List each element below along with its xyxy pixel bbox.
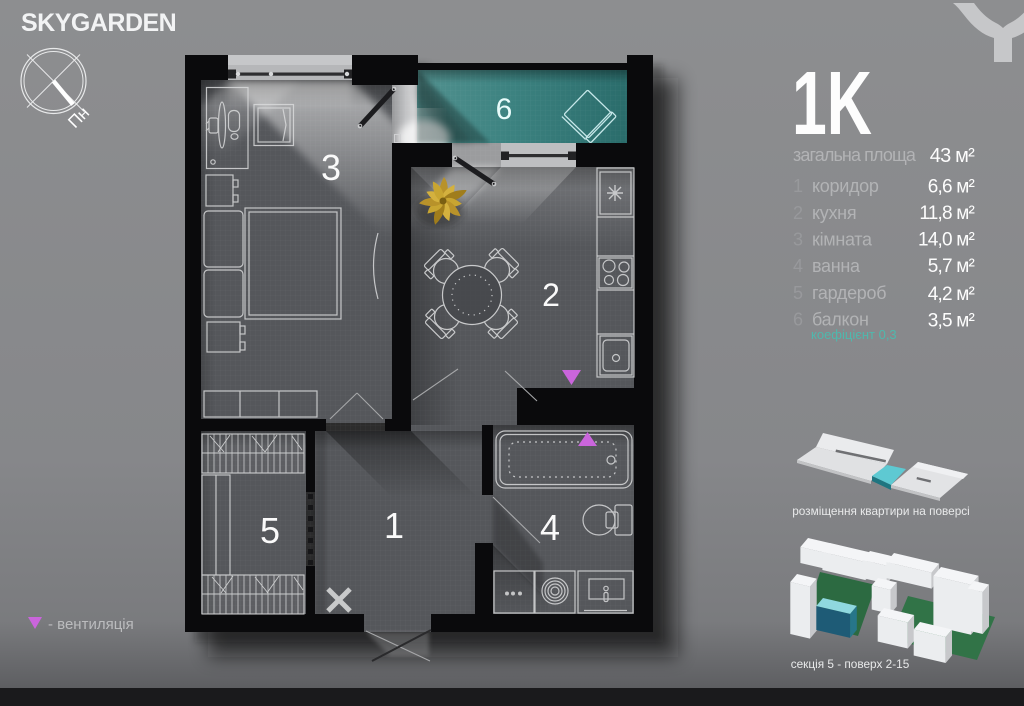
svg-text:- вентиляція: - вентиляція [48,616,134,633]
svg-text:коефіцієнт 0,3: коефіцієнт 0,3 [811,327,897,342]
svg-text:розміщення квартири на поверсі: розміщення квартири на поверсі [792,504,970,518]
svg-text:1: 1 [793,176,803,196]
svg-text:3: 3 [321,147,341,188]
svg-text:5: 5 [793,283,803,303]
svg-text:6: 6 [496,93,513,126]
svg-text:загальна площа: загальна площа [793,145,917,165]
svg-text:2: 2 [793,203,803,223]
svg-text:5,7 м²: 5,7 м² [928,256,975,277]
svg-text:43 м²: 43 м² [930,145,975,167]
svg-text:4: 4 [793,256,803,276]
svg-text:6: 6 [793,310,803,330]
svg-text:3: 3 [793,230,803,250]
svg-text:5: 5 [260,510,280,551]
svg-text:кухня: кухня [812,203,856,223]
svg-text:1: 1 [384,505,404,546]
svg-text:6,6 м²: 6,6 м² [928,177,975,198]
svg-text:коридор: коридор [812,176,879,196]
svg-text:2: 2 [542,277,560,313]
svg-text:4,2 м²: 4,2 м² [928,284,975,305]
svg-text:кімната: кімната [812,230,873,250]
svg-text:ванна: ванна [812,256,861,276]
svg-text:1K: 1K [792,54,872,154]
svg-text:SKYGARDEN: SKYGARDEN [21,9,176,37]
svg-text:3,5 м²: 3,5 м² [928,311,975,332]
svg-text:14,0 м²: 14,0 м² [918,230,975,251]
svg-text:11,8 м²: 11,8 м² [919,203,974,224]
svg-text:секція 5 - поверх 2-15: секція 5 - поверх 2-15 [791,657,910,671]
svg-text:гардероб: гардероб [812,283,886,303]
svg-text:4: 4 [540,507,560,548]
